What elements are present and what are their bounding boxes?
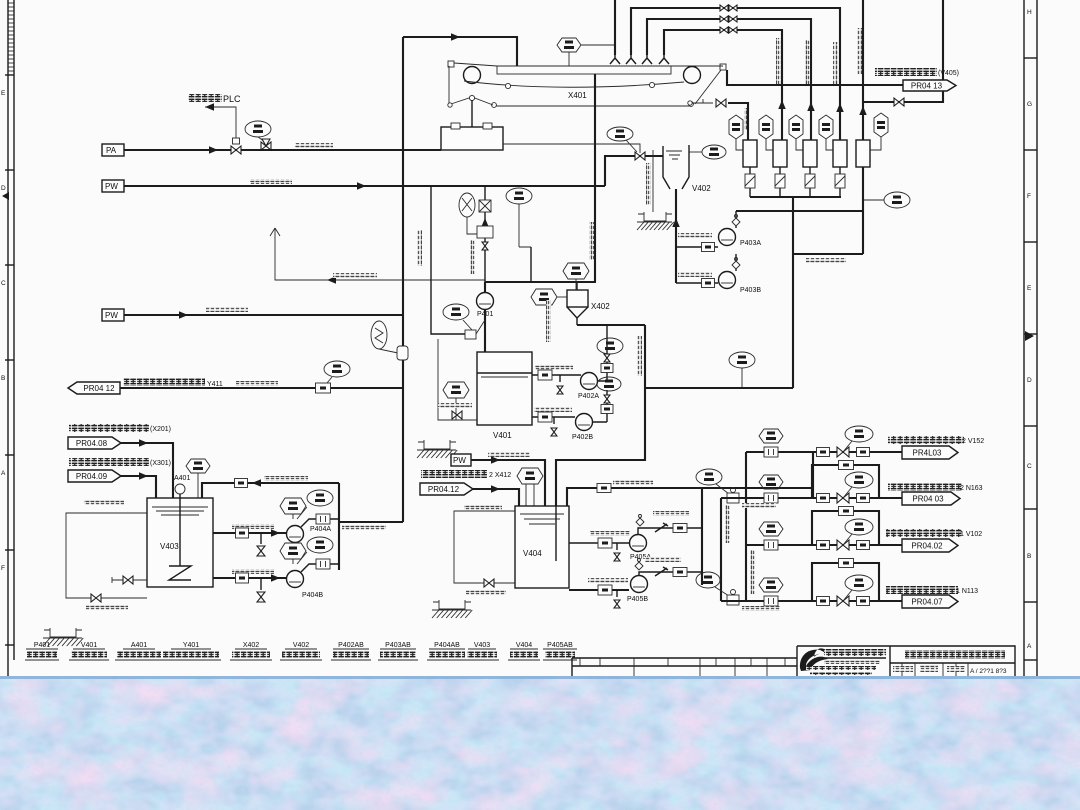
svg-text:PR04 12: PR04 12 <box>83 384 115 393</box>
svg-text:X402: X402 <box>591 302 610 311</box>
svg-text:A: A <box>1 470 6 477</box>
svg-text:X401: X401 <box>568 91 587 100</box>
svg-text:P403AB: P403AB <box>385 642 411 649</box>
svg-text:P405B: P405B <box>627 596 648 603</box>
svg-text:D: D <box>1027 377 1032 384</box>
svg-text:P403A: P403A <box>740 240 761 247</box>
svg-text:E: E <box>1 90 6 97</box>
svg-text:V403: V403 <box>474 642 490 649</box>
svg-text:(X201): (X201) <box>150 426 171 433</box>
svg-text:E: E <box>1027 285 1032 292</box>
svg-text:V404: V404 <box>523 549 542 558</box>
svg-text:P404AB: P404AB <box>434 642 460 649</box>
svg-text:V401: V401 <box>493 431 512 440</box>
svg-text:P401: P401 <box>34 642 50 649</box>
svg-text:V403: V403 <box>160 542 179 551</box>
svg-text:F: F <box>1 565 5 572</box>
svg-text:2 N163: 2 N163 <box>960 485 983 492</box>
svg-text:P405AB: P405AB <box>547 642 573 649</box>
svg-text:PR04 13: PR04 13 <box>911 82 943 91</box>
svg-text:B: B <box>1027 553 1031 560</box>
svg-text:A / 2??1 8?3: A / 2??1 8?3 <box>970 668 1007 675</box>
svg-text:PW: PW <box>105 311 118 320</box>
svg-text:C: C <box>1027 463 1032 470</box>
svg-text:1 V102: 1 V102 <box>960 531 982 538</box>
svg-text:X402: X402 <box>243 642 259 649</box>
svg-text:PR04.09: PR04.09 <box>76 472 108 481</box>
svg-text:V402: V402 <box>692 184 711 193</box>
svg-text:P404B: P404B <box>302 592 323 599</box>
svg-text:PLC: PLC <box>223 94 241 104</box>
svg-text:P402A: P402A <box>578 393 599 400</box>
svg-text:A401: A401 <box>174 475 190 482</box>
svg-text:P404A: P404A <box>310 526 331 533</box>
svg-text:V401: V401 <box>81 642 97 649</box>
svg-text:P402B: P402B <box>572 434 593 441</box>
svg-text:2 X412: 2 X412 <box>489 472 511 479</box>
svg-text:G: G <box>1027 101 1032 108</box>
svg-text:B: B <box>1 375 5 382</box>
svg-text:1 N113: 1 N113 <box>956 588 978 595</box>
svg-text:A: A <box>1027 643 1032 650</box>
svg-text:PW: PW <box>453 456 466 465</box>
svg-text:PR04.08: PR04.08 <box>76 439 108 448</box>
svg-text:D: D <box>1 185 6 192</box>
svg-text:V404: V404 <box>516 642 532 649</box>
svg-text:PR04.07: PR04.07 <box>911 598 943 607</box>
svg-text:H: H <box>1027 9 1032 16</box>
svg-text:C: C <box>1 280 6 287</box>
svg-text:F: F <box>1027 193 1031 200</box>
svg-text:Y401: Y401 <box>183 642 199 649</box>
svg-text:PA: PA <box>106 146 117 155</box>
svg-text:A401: A401 <box>131 642 147 649</box>
svg-text:(X301): (X301) <box>150 460 171 467</box>
svg-text:(V405): (V405) <box>938 70 959 77</box>
svg-text:P403B: P403B <box>740 287 761 294</box>
svg-text:PR4L03: PR4L03 <box>913 449 942 458</box>
svg-text:Y411: Y411 <box>207 381 223 388</box>
svg-text:PR04.12: PR04.12 <box>428 485 460 494</box>
svg-text:P402AB: P402AB <box>338 642 364 649</box>
svg-text:2 V152: 2 V152 <box>962 438 984 445</box>
svg-text:V402: V402 <box>293 642 309 649</box>
svg-text:PR04 03: PR04 03 <box>912 495 944 504</box>
svg-text:PR04.02: PR04.02 <box>911 542 943 551</box>
svg-text:PW: PW <box>105 182 118 191</box>
